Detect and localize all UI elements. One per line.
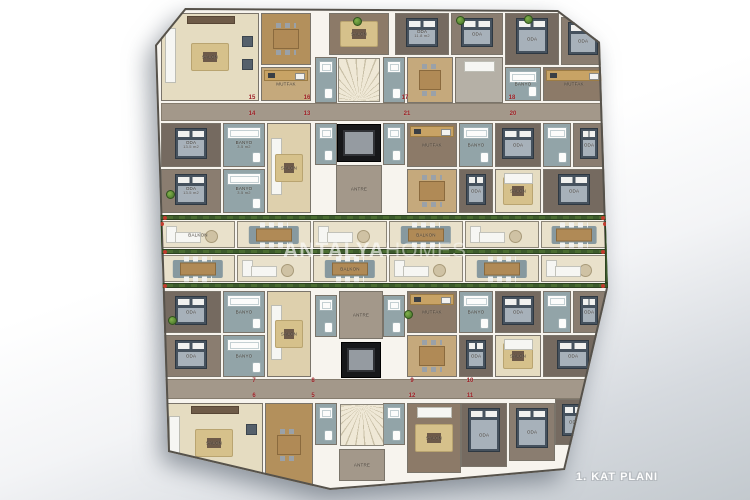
room-oda: ODA — [496, 124, 540, 166]
bathtub — [319, 407, 333, 419]
elevator — [337, 124, 381, 162]
room-label: ODA13.5 m2 — [183, 186, 199, 196]
side-table — [357, 230, 370, 243]
room — [262, 14, 310, 64]
room-label: BANYO3.5 m2 — [236, 140, 253, 150]
room-salon: SALON — [408, 404, 460, 472]
bathtub — [387, 61, 401, 73]
balcony — [466, 222, 538, 247]
sofa — [504, 173, 533, 184]
bed — [516, 408, 548, 448]
room — [544, 124, 570, 166]
room — [384, 124, 404, 164]
room-label: ODA — [584, 309, 594, 314]
room-oda: ODA — [556, 400, 592, 444]
room-oda: ODA — [460, 336, 492, 376]
side-table — [509, 230, 522, 243]
sofa — [165, 28, 176, 83]
dining-table — [419, 181, 445, 201]
balcony — [542, 222, 606, 247]
room-label: SALON — [206, 440, 222, 445]
room-antre: ANTRE — [340, 292, 382, 338]
room-label: BANYO — [468, 309, 485, 314]
balcony: BALKON — [314, 256, 386, 281]
plant-icon — [456, 16, 465, 25]
toilet — [528, 86, 537, 97]
room-label: ODA — [513, 309, 523, 314]
room-oda: ODA — [544, 336, 602, 376]
room-label: ODA — [186, 309, 196, 314]
building: SALONMUTFAKSALONODA11.8 m2ODAODAODABANYO… — [0, 0, 750, 500]
outdoor-dining-table — [256, 228, 292, 241]
plant-icon — [166, 190, 175, 199]
balcony — [238, 256, 310, 281]
unit-number: 13 — [304, 111, 311, 117]
balcony — [390, 256, 462, 281]
room-area: 11.8 m2 — [414, 34, 430, 39]
toilet — [252, 318, 261, 329]
room — [384, 404, 404, 444]
room-label: ODA — [471, 188, 481, 193]
bathtub — [319, 299, 333, 311]
room-label: ODA — [568, 353, 578, 358]
room — [408, 170, 456, 212]
room-label: MUTFAK — [564, 81, 583, 86]
corner-sofa — [318, 226, 329, 243]
bathtub — [319, 127, 333, 139]
staircase — [340, 404, 384, 446]
outdoor-dining-table — [484, 262, 520, 275]
bathtub — [387, 299, 401, 311]
room-label: ODA — [584, 142, 594, 147]
room-banyo: BANYO — [224, 292, 264, 332]
room-label: MUTFAK — [276, 81, 295, 86]
room-label: ODA — [578, 38, 588, 43]
corridor — [162, 104, 604, 120]
balcony — [162, 256, 234, 281]
room-area: 13.5 m2 — [183, 191, 199, 196]
tv-sideboard — [191, 406, 239, 414]
building-shadow-wrapper: SALONMUTFAKSALONODA11.8 m2ODAODAODABANYO… — [0, 0, 750, 500]
unit-number: 15 — [249, 95, 256, 101]
room-label: ODA — [479, 432, 489, 437]
unit-number: 11 — [467, 393, 473, 399]
unit-number: 16 — [304, 95, 311, 101]
room-label: ODA — [471, 353, 481, 358]
elevator — [341, 342, 381, 378]
room-oda: ODA — [574, 124, 604, 166]
balcony-label: BALKON — [188, 232, 207, 237]
bed — [468, 408, 500, 452]
dining-table — [419, 346, 445, 366]
unit-number: 20 — [510, 111, 517, 117]
toilet — [392, 88, 401, 99]
plant-icon — [168, 316, 177, 325]
unit-number: 10 — [467, 378, 474, 384]
room-oda: ODA13.5 m2 — [162, 124, 220, 166]
unit-number: 17 — [402, 95, 409, 101]
room-banyo: BANYO — [224, 336, 264, 376]
toilet — [392, 150, 401, 161]
unit-number: 14 — [249, 111, 256, 117]
balcony: BALKON — [390, 222, 462, 247]
room-label: BANYO — [236, 309, 253, 314]
kitchen-counter — [410, 294, 454, 305]
balcony-planter — [605, 221, 610, 283]
toilet — [558, 318, 567, 329]
balcony — [542, 256, 606, 281]
sofa — [504, 339, 533, 350]
room-salon: SALON — [268, 124, 310, 212]
armchair — [246, 424, 257, 435]
corner-sofa — [166, 226, 177, 243]
room-label: BANYO — [236, 353, 253, 358]
unit-number: 18 — [509, 95, 516, 101]
unit-number: 7 — [252, 378, 255, 384]
toilet — [252, 362, 261, 373]
room-banyo: BANYO3.5 m2 — [224, 124, 264, 166]
room-area: 13.5 m2 — [183, 145, 199, 150]
balcony: BALKON — [162, 222, 234, 247]
room-label: SALON — [202, 54, 218, 59]
room-label: ODA — [569, 188, 579, 193]
corridor — [164, 380, 602, 398]
toilet — [392, 322, 401, 333]
dining-table — [277, 435, 301, 455]
room-label: SALON — [510, 353, 526, 358]
corner-sofa — [470, 226, 481, 243]
unit-number: 12 — [409, 393, 416, 399]
room-label: ANTRE — [354, 462, 370, 467]
floor-caption: 1. KAT PLANI — [576, 471, 658, 483]
room-label: ODA13.5 m2 — [183, 140, 199, 150]
corner-sofa — [242, 260, 253, 277]
room-oda: ODA — [544, 170, 604, 212]
dining-table — [419, 70, 441, 90]
bathtub — [387, 407, 401, 419]
room-label: ODA — [527, 429, 537, 434]
room-label: SALON — [281, 165, 297, 170]
balcony-planter — [160, 215, 608, 220]
room — [316, 296, 336, 336]
room-label: MUTFAK — [422, 309, 441, 314]
room — [408, 336, 456, 376]
staircase — [338, 58, 380, 102]
bathtub — [227, 173, 261, 185]
toilet — [252, 198, 261, 209]
room-oda: ODA — [460, 170, 492, 212]
room — [456, 58, 502, 102]
plant-icon — [353, 17, 362, 26]
room-oda: ODA11.8 m2 — [396, 14, 448, 54]
room-label: ODA — [527, 36, 537, 41]
room-label: SALON — [281, 331, 297, 336]
outdoor-dining-table — [180, 262, 216, 275]
bathtub — [547, 127, 567, 139]
room — [316, 404, 336, 444]
balcony — [314, 222, 386, 247]
unit-number: 8 — [311, 378, 314, 384]
kitchen-counter — [410, 126, 454, 137]
bathtub — [227, 339, 261, 351]
sofa — [169, 416, 180, 466]
bathtub — [227, 295, 261, 307]
room-label: ODA — [569, 419, 579, 424]
toilet — [324, 150, 333, 161]
room — [316, 124, 336, 164]
unit-number: 6 — [252, 393, 255, 399]
room-salon: SALON — [496, 336, 540, 376]
bathtub — [387, 127, 401, 139]
tv-sideboard — [187, 16, 235, 24]
plant-icon — [404, 310, 413, 319]
plant-icon — [163, 16, 172, 25]
room-oda: ODA — [562, 18, 604, 64]
room-mutfak: MUTFAK — [408, 292, 456, 332]
kitchen-counter — [546, 70, 602, 81]
room-oda: ODA — [574, 292, 604, 332]
room-banyo: BANYO — [460, 292, 492, 332]
side-table — [433, 264, 446, 277]
room-label: SALON — [351, 31, 367, 36]
room — [544, 292, 570, 332]
outdoor-dining-table — [556, 228, 592, 241]
room-oda: ODA — [162, 336, 220, 376]
toilet — [480, 318, 489, 329]
sofa — [464, 61, 495, 72]
room-label: ODA — [472, 31, 482, 36]
room-oda: ODA — [496, 292, 540, 332]
room-oda: ODA — [162, 292, 220, 332]
toilet — [392, 430, 401, 441]
room-label: ODA — [186, 353, 196, 358]
balcony-planter — [157, 221, 162, 283]
toilet — [324, 322, 333, 333]
room-antre: ANTRE — [337, 166, 381, 212]
balcony-planter — [160, 249, 608, 254]
side-table — [281, 264, 294, 277]
armchair — [242, 59, 253, 70]
room-label: ANTRE — [353, 312, 369, 317]
bathtub — [227, 127, 261, 139]
toilet — [558, 152, 567, 163]
toilet — [480, 152, 489, 163]
bathtub — [319, 61, 333, 73]
unit-number: 21 — [404, 111, 411, 117]
unit-number: 9 — [410, 378, 413, 384]
corner-sofa — [394, 260, 405, 277]
floor-plan-image: SALONMUTFAKSALONODA11.8 m2ODAODAODABANYO… — [0, 0, 750, 500]
room-salon: SALON — [496, 170, 540, 212]
room-area: 3.5 m2 — [236, 145, 253, 150]
room-label: MUTFAK — [422, 142, 441, 147]
room-label: ODA11.8 m2 — [414, 29, 430, 39]
toilet — [252, 152, 261, 163]
room-label: BANYO3.5 m2 — [236, 186, 253, 196]
unit-number: 5 — [311, 393, 314, 399]
room-salon: SALON — [268, 292, 310, 376]
sofa — [417, 407, 451, 418]
room-banyo: BANYO3.5 m2 — [224, 170, 264, 212]
bathtub — [463, 295, 489, 307]
room-salon: SALON — [166, 404, 262, 482]
room — [384, 296, 404, 336]
room — [316, 58, 336, 102]
room-area: 3.5 m2 — [236, 191, 253, 196]
balcony — [466, 256, 538, 281]
dining-table — [273, 29, 299, 49]
room-label: SALON — [510, 188, 526, 193]
room-mutfak: MUTFAK — [544, 68, 604, 100]
plant-icon — [524, 15, 533, 24]
room-label: BANYO — [468, 142, 485, 147]
room-oda: ODA — [510, 404, 554, 460]
room-banyo: BANYO — [460, 124, 492, 166]
room-oda: ODA — [462, 404, 506, 466]
room-antre: ANTRE — [340, 450, 384, 480]
balcony-planter — [160, 283, 608, 288]
room-label: SALON — [426, 435, 442, 440]
room-label: ANTRE — [351, 186, 367, 191]
bathtub — [547, 295, 567, 307]
corner-sofa — [546, 260, 557, 277]
toilet — [324, 430, 333, 441]
balcony-label: BALKON — [340, 266, 359, 271]
room — [408, 58, 452, 102]
balcony-label: BALKON — [416, 232, 435, 237]
balcony — [238, 222, 310, 247]
bathtub — [463, 127, 489, 139]
room-label: ODA — [513, 142, 523, 147]
kitchen-counter — [264, 70, 308, 81]
room-salon: SALON — [162, 14, 258, 100]
armchair — [242, 36, 253, 47]
room-mutfak: MUTFAK — [408, 124, 456, 166]
room — [266, 404, 312, 486]
room-label: BANYO — [515, 81, 532, 86]
toilet — [324, 88, 333, 99]
